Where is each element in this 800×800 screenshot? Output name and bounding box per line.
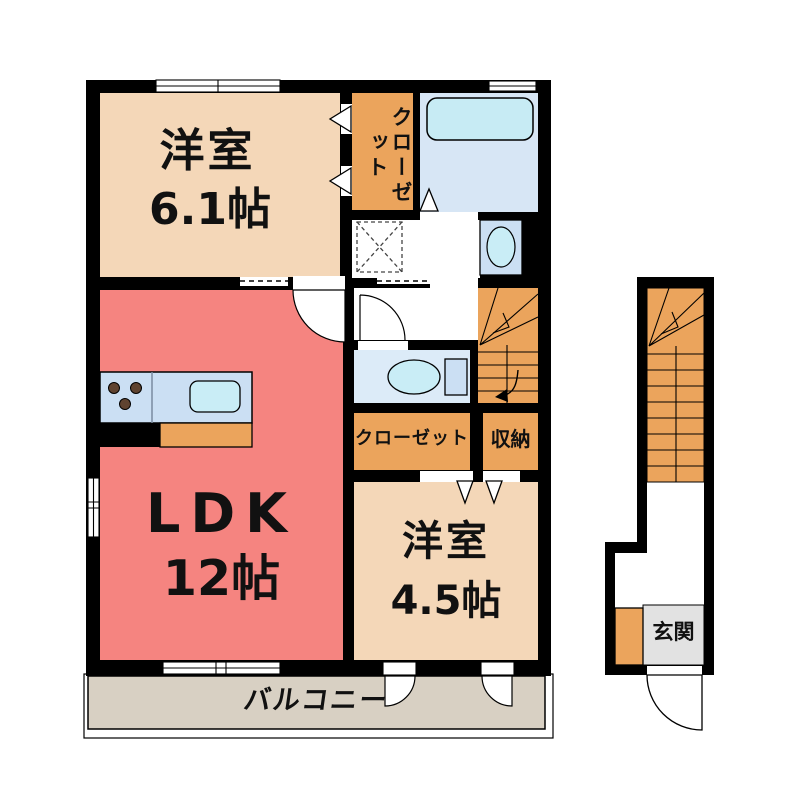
entrance-floor — [643, 605, 704, 665]
storage-floor — [483, 413, 538, 470]
bedroom1-floor — [100, 93, 340, 277]
shoe-cabinet — [615, 608, 643, 665]
washroom-floor — [352, 220, 480, 278]
ldk-side-window — [88, 478, 99, 537]
stairwell-hall-jog — [615, 553, 647, 608]
toilet — [388, 359, 467, 395]
entrance-door-swing — [647, 675, 702, 730]
main-stairs-floor — [478, 288, 538, 403]
washroom-doorway-gap — [430, 276, 478, 289]
entrance-doorway-gap — [647, 666, 702, 675]
kitchen-counter-end — [100, 423, 160, 447]
stove-burner-icon — [109, 383, 120, 394]
floor-plan-drawing — [0, 0, 800, 800]
bathroom-window — [489, 81, 536, 91]
bath-doorway-gap — [420, 212, 478, 220]
bedroom1-ldk-opening — [240, 277, 294, 286]
hallway-floor — [354, 288, 478, 340]
bedroom2-balcony-doorway1 — [383, 662, 416, 675]
toilet-doorway-gap — [358, 341, 408, 350]
stove-burner-icon — [131, 383, 142, 394]
bathtub — [427, 98, 533, 140]
floor-plan: 洋室 6.1帖 クローゼット LDK 12帖 洋室 4.5帖 クローゼット 収納… — [0, 0, 800, 800]
washroom-sliding-door — [377, 277, 430, 284]
stove-burner-icon — [120, 399, 131, 410]
closet-upper-floor — [352, 93, 413, 210]
ldk-balcony-window — [163, 662, 280, 674]
kitchen-cabinet — [160, 423, 252, 447]
closet-lower-floor — [354, 413, 470, 470]
balcony-floor — [88, 676, 545, 729]
kitchen-unit — [100, 372, 252, 447]
bedroom1-window — [156, 80, 280, 92]
ldk-floor — [100, 290, 343, 660]
washbasin — [480, 220, 522, 275]
ldk-doorway-gap — [293, 276, 345, 290]
bedroom2-floor — [354, 482, 538, 660]
bedroom2-balcony-doorway2 — [481, 662, 514, 675]
kitchen-sink — [190, 381, 240, 412]
